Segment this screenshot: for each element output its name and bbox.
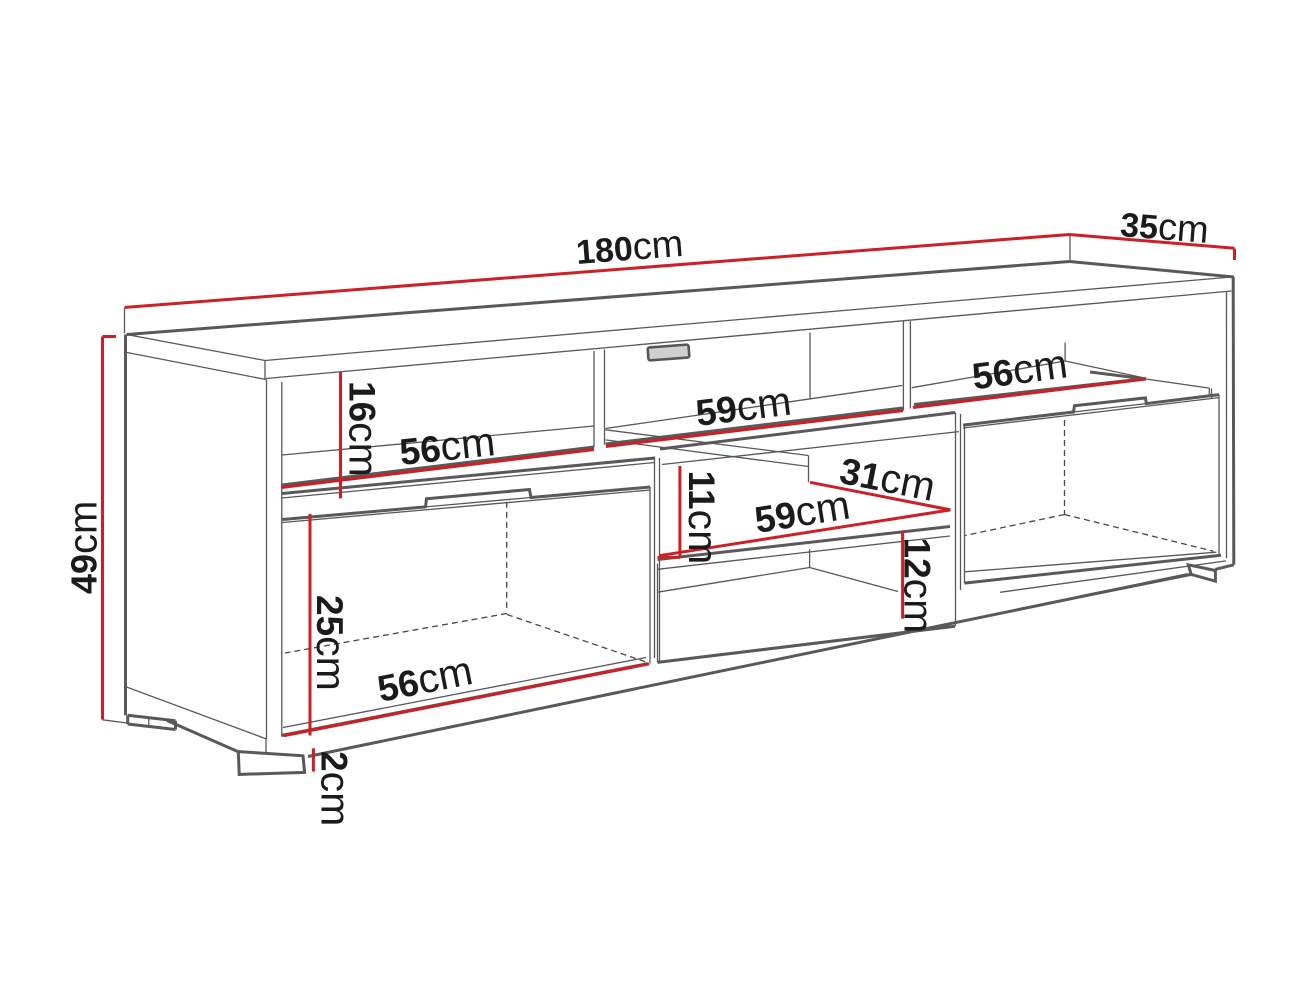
svg-text:49cm: 49cm (62, 501, 106, 594)
svg-text:11cm: 11cm (680, 471, 726, 565)
svg-text:16cm: 16cm (341, 381, 387, 477)
svg-text:12cm: 12cm (896, 538, 942, 634)
svg-text:2cm: 2cm (313, 751, 359, 826)
svg-text:35cm: 35cm (1119, 203, 1211, 252)
svg-text:25cm: 25cm (308, 595, 354, 691)
